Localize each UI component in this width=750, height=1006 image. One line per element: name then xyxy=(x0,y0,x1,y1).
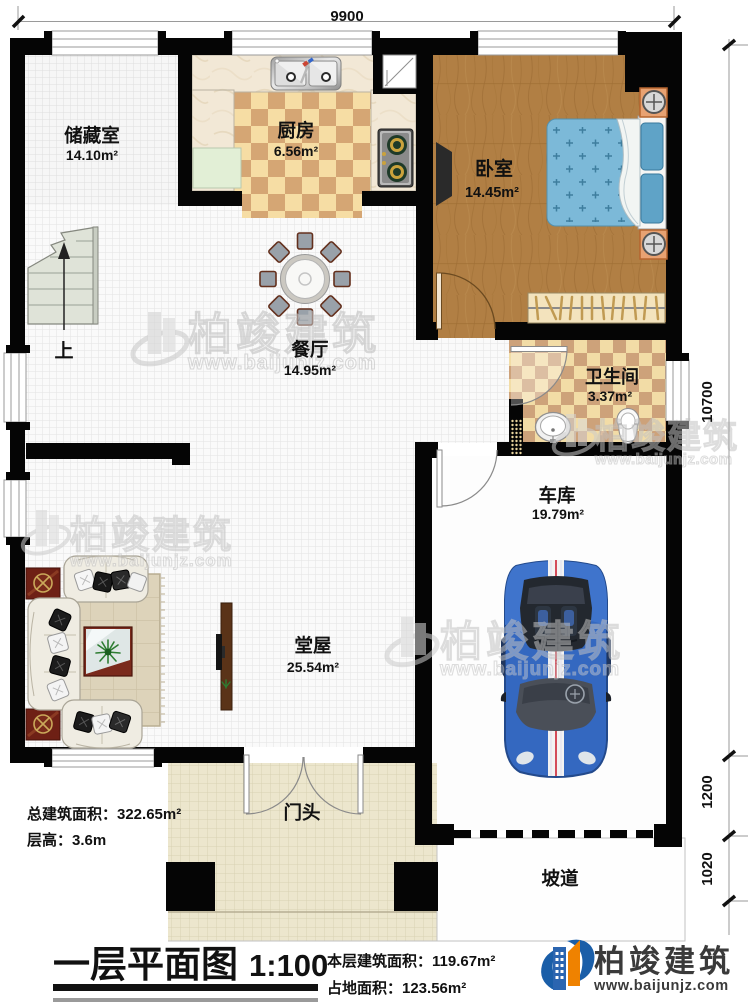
svg-text:14.95m²: 14.95m² xyxy=(284,362,336,378)
svg-text:www.baijunjz.com: www.baijunjz.com xyxy=(594,451,732,468)
svg-text:www.baijunjz.com: www.baijunjz.com xyxy=(593,978,729,994)
svg-text:25.54m²: 25.54m² xyxy=(287,659,339,675)
svg-text:www.baijunjz.com: www.baijunjz.com xyxy=(187,352,377,374)
svg-text:坡道: 坡道 xyxy=(541,868,579,889)
svg-text:总建筑面积：322.65m²: 总建筑面积：322.65m² xyxy=(27,805,181,823)
svg-text:餐厅: 餐厅 xyxy=(290,339,328,360)
svg-text:1200: 1200 xyxy=(699,775,716,808)
svg-text:卧室: 卧室 xyxy=(475,157,513,180)
svg-text:19.79m²: 19.79m² xyxy=(532,506,584,522)
svg-text:储藏室: 储藏室 xyxy=(63,125,120,146)
svg-text:门头: 门头 xyxy=(283,802,320,823)
svg-text:10700: 10700 xyxy=(699,381,716,423)
svg-text:3.37m²: 3.37m² xyxy=(588,388,633,404)
svg-text:柏竣建筑: 柏竣建筑 xyxy=(594,944,734,979)
svg-text:9900: 9900 xyxy=(330,8,363,25)
svg-text:柏竣建筑: 柏竣建筑 xyxy=(440,618,624,665)
svg-text:堂屋: 堂屋 xyxy=(294,635,331,656)
svg-text:1:100: 1:100 xyxy=(249,948,328,983)
svg-text:层高：3.6m: 层高：3.6m xyxy=(27,831,106,849)
svg-text:本层建筑面积：119.67m²: 本层建筑面积：119.67m² xyxy=(327,952,495,970)
svg-text:卫生间: 卫生间 xyxy=(585,366,639,387)
svg-text:www.baijunjz.com: www.baijunjz.com xyxy=(439,659,620,680)
svg-text:厨房: 厨房 xyxy=(277,120,314,141)
svg-text:14.45m²: 14.45m² xyxy=(465,185,519,201)
svg-text:14.10m²: 14.10m² xyxy=(66,147,118,163)
svg-text:6.56m²: 6.56m² xyxy=(274,143,319,159)
svg-text:车库: 车库 xyxy=(538,485,575,506)
svg-text:www.baijunjz.com: www.baijunjz.com xyxy=(69,551,233,570)
svg-text:上: 上 xyxy=(54,340,73,362)
svg-text:占地面积：123.56m²: 占地面积：123.56m² xyxy=(327,979,466,997)
svg-text:1020: 1020 xyxy=(699,852,716,885)
svg-text:一层平面图: 一层平面图 xyxy=(53,944,238,985)
